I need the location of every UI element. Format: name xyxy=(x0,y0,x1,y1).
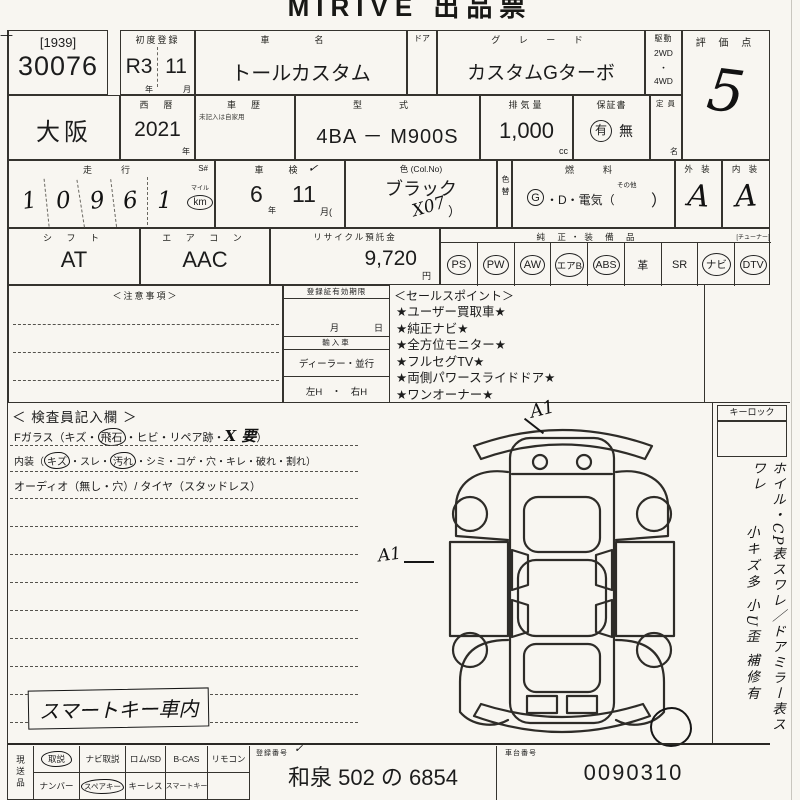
capacity-box: 定 員 名 xyxy=(650,95,682,160)
score-label: 評 価 点 xyxy=(683,34,769,49)
inspector-line xyxy=(10,610,358,611)
capacity-unit: 名 xyxy=(670,146,678,157)
displacement-unit: cc xyxy=(559,146,568,156)
audio-tire-line: オーディオ（無し・穴）/ タイヤ（スタッドレス） xyxy=(14,478,261,494)
exterior-grade-value: A xyxy=(675,177,722,215)
inspector-line xyxy=(10,666,358,667)
year-box: 西 暦 2021 年 xyxy=(120,95,195,160)
item-rom-sd: ロム/SD xyxy=(126,746,166,773)
warranty-no: 無 xyxy=(619,121,633,141)
bottom-side-label: 現送品 xyxy=(8,746,34,800)
item-bcas: B-CAS xyxy=(166,746,208,773)
cautions-label: ＜注意事項＞ xyxy=(9,289,282,302)
registration-number-tick: ✓ xyxy=(294,742,303,755)
front-bumper xyxy=(474,430,652,459)
item-manual-circled: 取説 xyxy=(41,751,72,767)
item-keyless: キーレス xyxy=(126,773,166,800)
registration-validity-label: 登録証有効期限 xyxy=(284,286,389,299)
exterior-grade-label: 外 装 xyxy=(676,163,721,175)
inspection-label: 車 検 xyxy=(216,163,344,176)
warranty-box: 保証書 有 無 xyxy=(573,95,650,160)
car-body xyxy=(510,438,614,723)
year-label: 西 暦 xyxy=(121,98,194,111)
first-reg-month-unit: 月 xyxy=(183,84,191,95)
equip-airbag: エアB xyxy=(555,253,584,277)
door-column: ドア xyxy=(407,30,437,95)
wheel-rear-right xyxy=(637,633,671,667)
model-code-value: 4BA － M900S xyxy=(296,120,479,149)
inspector-line xyxy=(10,471,358,472)
drivetrain-box: 駆動 2WD ・ 4WD xyxy=(645,30,682,95)
inspector-vertical-notes: ホイル・CP表スワレ／ドアミラー表スワレ 小キズ多 小U歪 補修有 xyxy=(719,461,787,741)
rear-bumper xyxy=(474,704,650,732)
grade-label: グ レ ー ド xyxy=(438,33,644,46)
equip-leather: 革 xyxy=(637,257,648,273)
lot-number: 30076 xyxy=(9,51,107,82)
inspector-line xyxy=(10,582,358,583)
vertical-note-wheel: ホイル・CP表スワレ／ドアミラー表スワレ xyxy=(761,461,787,741)
wheel-rear-left xyxy=(453,633,487,667)
sales-point-item: ★フルセグTV★ xyxy=(390,354,704,371)
fuel-options: ・D・電気（ xyxy=(546,191,615,208)
drivetrain-label: 駆動 xyxy=(646,33,681,44)
grade-box: グ レ ー ド カスタムGターボ xyxy=(437,30,645,95)
registration-month-label: 月 xyxy=(330,321,339,334)
sales-points-box: ＜セールスポイント＞ ★ユーザー買取車★ ★純正ナビ★ ★全方位モニター★ ★フ… xyxy=(390,285,705,403)
displacement-value: 1,000 xyxy=(481,118,572,144)
interior-mid: ・スレ・ xyxy=(70,457,110,468)
shift-label: シ フ ト xyxy=(9,231,139,244)
shift-value: AT xyxy=(9,247,139,273)
color-change-label: 色替 xyxy=(500,175,511,199)
cautions-line xyxy=(13,352,279,353)
fglass-mid: ・ヒビ・リペア跡・ xyxy=(126,432,225,444)
equip-ps: PS xyxy=(447,255,472,275)
sales-point-item: ★全方位モニター★ xyxy=(390,337,704,354)
displacement-box: 排気量 1,000 cc xyxy=(480,95,573,160)
equip-pw: PW xyxy=(483,255,509,275)
inspection-month-unit: 月( xyxy=(320,205,332,218)
inspection-year-unit: 年 xyxy=(268,205,276,216)
cautions-line xyxy=(13,380,279,381)
exterior-grade-box: 外 装 A xyxy=(675,160,722,228)
warranty-yes-circled: 有 xyxy=(590,120,612,142)
aircon-box: エ ア コ ン AAC xyxy=(140,228,270,285)
fuel-close-paren: ） xyxy=(651,187,667,211)
cautions-box: ＜注意事項＞ xyxy=(8,285,283,403)
rear-window xyxy=(524,644,600,692)
equip-aw: AW xyxy=(520,255,545,275)
first-reg-era-unit: 年 xyxy=(145,84,153,95)
handle-position-label: 左H ・ 右H xyxy=(284,377,389,404)
fglass-circled-item: 飛石 xyxy=(98,428,126,446)
smart-key-note-box: スマートキー車内 xyxy=(28,687,210,729)
registration-validity-box: 登録証有効期限 月 日 輸入車 ディーラー・並行 左H ・ 右H xyxy=(283,285,390,403)
sales-point-item: ★ユーザー買取車★ xyxy=(390,304,704,321)
fglass-post: ） xyxy=(256,432,267,444)
score-box: 評 価 点 5 xyxy=(682,30,770,160)
year-unit: 年 xyxy=(182,146,190,157)
item-empty xyxy=(208,773,250,800)
fender-rear-left xyxy=(460,640,508,725)
prefecture-value: 大阪 xyxy=(9,112,119,147)
prefecture-box: 大阪 xyxy=(8,95,120,160)
interior-circled-yogore: 汚れ xyxy=(110,452,136,469)
fuel-label: 燃 料 xyxy=(513,163,674,176)
bottom-band-line xyxy=(8,743,770,745)
color-change-column: 色替 xyxy=(497,160,512,228)
registration-number-label: 登録番号 xyxy=(256,748,288,758)
cautions-line xyxy=(13,324,279,325)
registration-day-label: 日 xyxy=(374,321,383,334)
mileage-mile-label: マイル xyxy=(183,183,217,192)
drivetrain-dot: ・ xyxy=(646,62,681,74)
equip-abs: ABS xyxy=(593,255,620,275)
mileage-digit: 1 xyxy=(147,177,181,225)
model-code-box: 型 式 4BA － M900S xyxy=(295,95,480,160)
interior-grade-value: A xyxy=(722,178,770,215)
first-reg-era: R3 xyxy=(121,47,157,87)
right-column: キーロック ホイル・CP表スワレ／ドアミラー表スワレ 小キズ多 小U歪 補修有 xyxy=(712,402,790,745)
recycle-fee-box: リサイクル預託金 9,720 円 xyxy=(270,228,440,285)
inspection-month: 11 xyxy=(292,181,316,208)
color-label: 色 (Col.No) xyxy=(346,163,496,175)
recycle-fee-value: 9,720 xyxy=(364,247,417,271)
aircon-label: エ ア コ ン xyxy=(141,231,269,244)
wheel-front-right xyxy=(637,497,671,531)
fglass-handwritten: X 要 xyxy=(225,427,257,445)
door-label: ドア xyxy=(408,33,436,44)
inspection-box: 車 検 ✓ 6 年 11 月( xyxy=(215,160,345,228)
item-number-plate: ナンバー xyxy=(34,773,80,800)
first-registration-label: 初度登録 xyxy=(121,33,194,46)
interior-post: ・シミ・コゲ・穴・キレ・破れ・割れ） xyxy=(136,457,316,468)
drivetrain-4wd: 4WD xyxy=(646,76,681,86)
lot-bracket: [1939] xyxy=(9,35,107,50)
recycle-fee-unit: 円 xyxy=(422,269,431,282)
history-box: 車 歴 未記入は自家用 xyxy=(195,95,295,160)
damage-mark-side-line xyxy=(404,561,434,563)
car-name-label: 車 名 xyxy=(196,33,406,46)
first-registration-box: 初度登録 R3 11 年 月 xyxy=(120,30,195,95)
wheel-front-left xyxy=(453,497,487,531)
windshield xyxy=(524,497,600,552)
interior-condition-line: 内装（キズ・スレ・汚れ・シミ・コゲ・穴・キレ・破れ・割れ） xyxy=(14,452,316,469)
roof xyxy=(518,560,606,636)
shift-box: シ フ ト AT xyxy=(8,228,140,285)
first-reg-month: 11 xyxy=(157,47,194,87)
history-note: 未記入は自家用 xyxy=(199,111,245,121)
interior-pre: 内装（ xyxy=(14,457,44,468)
color-value: ブラック xyxy=(346,175,496,201)
inspection-tick-mark: ✓ xyxy=(307,160,319,175)
car-name-box: 車 名 トールカスタム xyxy=(195,30,407,95)
equipment-box: 純 正・装 備 品 [チューナー] PS PW AW エアB ABS 革 SR … xyxy=(440,228,770,285)
dealer-parallel-label: ディーラー・並行 xyxy=(284,350,389,377)
sheet-title: MIRIVE 出品票 xyxy=(225,0,595,24)
score-value: 5 xyxy=(679,52,773,130)
item-remote: リモコン xyxy=(208,746,250,773)
mileage-box: 走 行 S# 1 0 9 6 1 マイル km xyxy=(8,160,215,228)
grade-value: カスタムGターボ xyxy=(438,58,644,85)
interior-circled-kizu: キズ xyxy=(44,452,70,469)
chassis-number-cell: 車台番号 0090310 xyxy=(497,746,770,800)
item-smart-key: スマートキー xyxy=(166,773,208,800)
car-diagram xyxy=(412,402,712,747)
import-car-label: 輸入車 xyxy=(284,337,389,350)
fglass-pre: Fガラス（キズ・ xyxy=(14,432,98,444)
fuel-box: 燃 料 G ・D・電気（ その他 ） xyxy=(512,160,675,228)
drivetrain-2wd: 2WD xyxy=(646,48,681,58)
model-code-label: 型 式 xyxy=(296,98,479,111)
scan-edge-line xyxy=(791,0,792,800)
chassis-number-value: 0090310 xyxy=(497,760,770,786)
capacity-label: 定 員 xyxy=(651,98,681,109)
displacement-label: 排気量 xyxy=(481,98,572,111)
door-panel-right xyxy=(616,542,674,636)
history-label: 車 歴 xyxy=(196,98,294,111)
car-name-value: トールカスタム xyxy=(196,57,406,86)
keylock-label-box: キーロック xyxy=(717,405,787,421)
inspector-line xyxy=(10,445,358,446)
equip-dtv: DTV xyxy=(740,255,767,275)
color-code-paren: ） xyxy=(448,201,461,220)
inspector-line xyxy=(10,498,358,499)
registration-number-value: 和泉 502 の 6854 xyxy=(250,760,496,792)
damage-mark-side: A1 xyxy=(377,543,403,566)
keylock-label: キーロック xyxy=(718,406,786,419)
bottom-side-label-text: 現送品 xyxy=(15,755,27,790)
inspector-area: ＜ 検査員記入欄 ＞ Fガラス（キズ・飛石・ヒビ・リペア跡・X 要） 内装（キズ… xyxy=(8,403,364,745)
inspector-line xyxy=(10,526,358,527)
fuel-other-label: その他 xyxy=(617,179,637,189)
year-value: 2021 xyxy=(121,118,194,142)
vertical-note-scratch: 小キズ多 小U歪 補修有 xyxy=(735,461,761,741)
door-panel-left xyxy=(450,542,508,636)
recycle-fee-label: リサイクル預託金 xyxy=(271,231,439,243)
auction-sheet: MIRIVE 出品票 — [1939] 30076 初度登録 R3 11 年 月… xyxy=(0,0,800,800)
fuel-gasoline-circled: G xyxy=(527,189,544,206)
mileage-km-circled: km xyxy=(187,195,212,210)
sales-point-item: ★純正ナビ★ xyxy=(390,321,704,338)
equip-navi: ナビ xyxy=(702,253,731,276)
inspector-line xyxy=(10,554,358,555)
registration-number-cell: 登録番号 ✓ 和泉 502 の 6854 xyxy=(250,746,497,800)
mileage-s-label: S# xyxy=(198,164,208,173)
mileage-label: 走 行 xyxy=(9,163,214,176)
tuner-label: [チューナー] xyxy=(735,232,771,241)
inspector-title: ＜ 検査員記入欄 ＞ xyxy=(8,403,364,426)
warranty-label: 保証書 xyxy=(574,98,649,111)
item-navi-manual: ナビ取説 xyxy=(80,746,126,773)
sales-points-title: ＜セールスポイント＞ xyxy=(390,285,704,304)
keylock-entry-box xyxy=(717,421,787,457)
aircon-value: AAC xyxy=(141,247,269,273)
inspection-year: 6 xyxy=(250,181,263,208)
inspector-line xyxy=(10,638,358,639)
sales-point-item: ★両側パワースライドドア★ xyxy=(390,370,704,387)
item-spare-key-circled: スペアキー xyxy=(81,779,124,794)
hand-drawn-circle xyxy=(650,707,692,747)
lot-box: [1939] 30076 xyxy=(8,30,108,95)
fglass-line: Fガラス（キズ・飛石・ヒビ・リペア跡・X 要） xyxy=(14,425,267,446)
equip-sr: SR xyxy=(672,259,687,271)
mileage-digit: 6 xyxy=(111,175,150,227)
interior-grade-label: 内 装 xyxy=(723,163,769,175)
interior-grade-box: 内 装 A xyxy=(722,160,770,228)
color-box: 色 (Col.No) ブラック X07 ） xyxy=(345,160,497,228)
chassis-number-label: 車台番号 xyxy=(505,748,537,758)
